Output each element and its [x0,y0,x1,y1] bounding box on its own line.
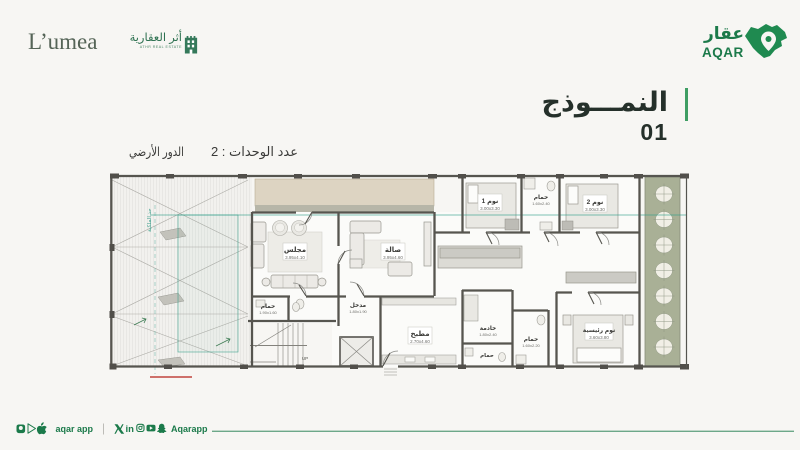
svg-text:3.95x4.60: 3.95x4.60 [383,255,403,260]
svg-text:1.60x2.20: 1.60x2.20 [522,343,540,348]
svg-text:2.70x4.60: 2.70x4.60 [410,339,430,344]
svg-text:in: in [126,424,135,435]
svg-text:aqar app: aqar app [56,424,94,434]
svg-text:مطبخ: مطبخ [410,331,429,338]
svg-text:3.60x3.80: 3.60x3.80 [589,335,609,340]
svg-text:3.95x4.10: 3.95x4.10 [285,255,305,260]
svg-text:1.60x2.40: 1.60x2.40 [532,201,550,206]
svg-text:1.80x2.40: 1.80x2.40 [479,332,497,337]
svg-text:نوم 2: نوم 2 [587,199,604,206]
svg-text:3.00x3.30: 3.00x3.30 [585,207,605,212]
svg-text:حمام: حمام [480,353,494,359]
svg-text:1.80x1.90: 1.80x1.90 [349,309,367,314]
svg-text:حد الملكية: حد الملكية [146,208,153,232]
svg-text:نوم 1: نوم 1 [482,198,499,205]
svg-text:3.00x3.30: 3.00x3.30 [480,206,500,211]
svg-text:مجلس: مجلس [284,247,306,254]
svg-text:Aqarapp: Aqarapp [171,424,208,434]
svg-text:نوم رئيسية: نوم رئيسية [583,328,615,334]
svg-text:UP: UP [302,356,308,361]
svg-text:صالة: صالة [385,247,402,254]
svg-text:1.90x1.60: 1.90x1.60 [259,310,277,315]
